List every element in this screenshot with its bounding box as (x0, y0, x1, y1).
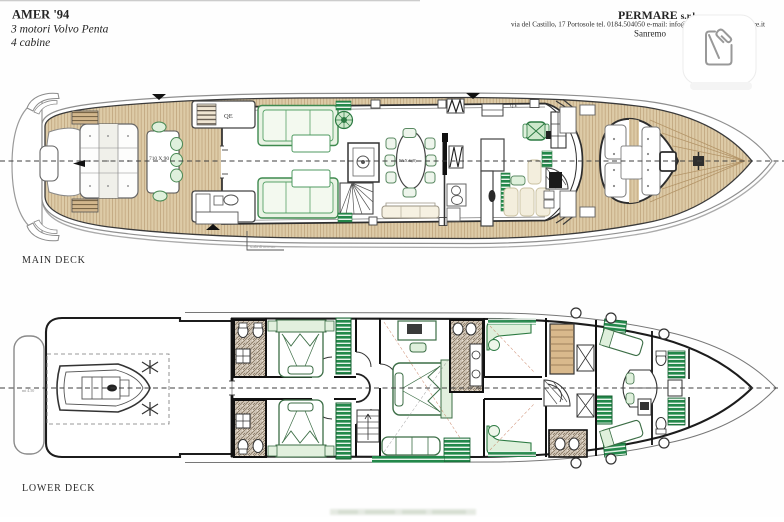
svg-text:PAX 6(8): PAX 6(8) (399, 158, 417, 163)
svg-text:4 cabine: 4 cabine (11, 37, 50, 49)
svg-text:LOWER DECK: LOWER DECK (22, 483, 95, 494)
svg-text:Sanremo: Sanremo (634, 29, 666, 39)
svg-text:MAIN DECK: MAIN DECK (22, 255, 86, 266)
svg-text:scala di accesso: scala di accesso (250, 244, 275, 249)
svg-text:QE: QE (224, 113, 233, 120)
svg-text:3 motori Volvo Penta: 3 motori Volvo Penta (10, 24, 109, 36)
svg-text:Q.E: Q.E (510, 103, 517, 108)
svg-text:AMER '94: AMER '94 (12, 8, 70, 22)
svg-text:mt 4.50: mt 4.50 (22, 388, 34, 393)
